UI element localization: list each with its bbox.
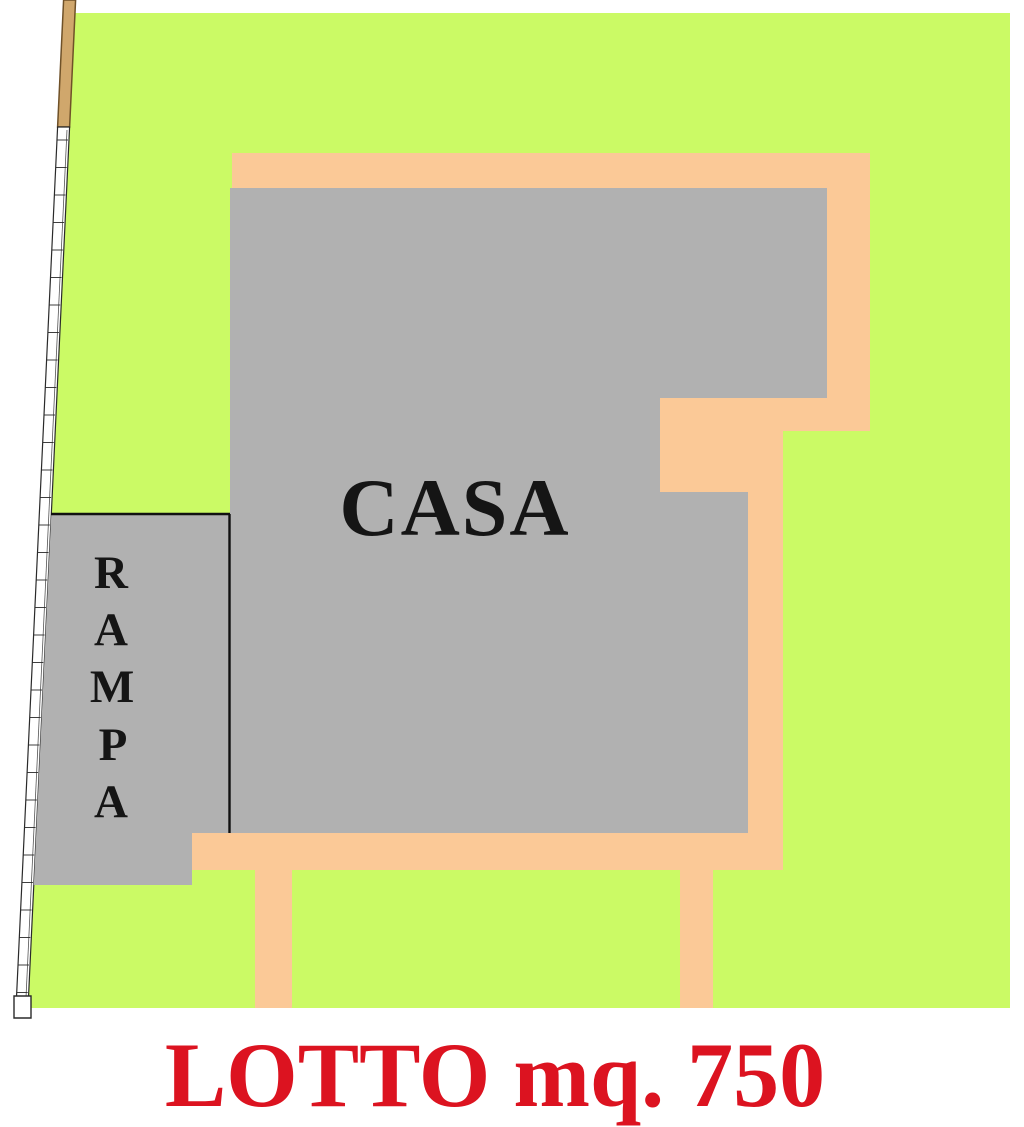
site-plan-page: CASA R A M P A LOTTO mq. 750 bbox=[0, 0, 1024, 1127]
ramp-letter-4: P bbox=[99, 719, 128, 771]
site-plan-drawing: CASA R A M P A LOTTO mq. 750 bbox=[0, 0, 1024, 1127]
lot-caption: LOTTO mq. 750 bbox=[165, 1024, 825, 1126]
ramp-letter-1: R bbox=[94, 547, 129, 599]
ramp-letter-2: A bbox=[94, 604, 128, 656]
path-bottom-band bbox=[190, 832, 783, 870]
path-stub-right bbox=[680, 870, 713, 1008]
path-right-lower-band bbox=[748, 492, 783, 833]
path-stub-left bbox=[255, 870, 292, 1008]
house-label: CASA bbox=[339, 462, 570, 553]
boundary-strip-foot bbox=[14, 996, 31, 1018]
path-notch-upper bbox=[660, 398, 870, 431]
ramp-label: R A M P A bbox=[90, 547, 134, 828]
path-right-upper-band bbox=[827, 188, 870, 431]
ramp-letter-5: A bbox=[94, 776, 128, 828]
ramp-letter-3: M bbox=[90, 661, 134, 713]
path-notch-lower bbox=[660, 431, 783, 492]
path-top-band bbox=[232, 153, 870, 188]
